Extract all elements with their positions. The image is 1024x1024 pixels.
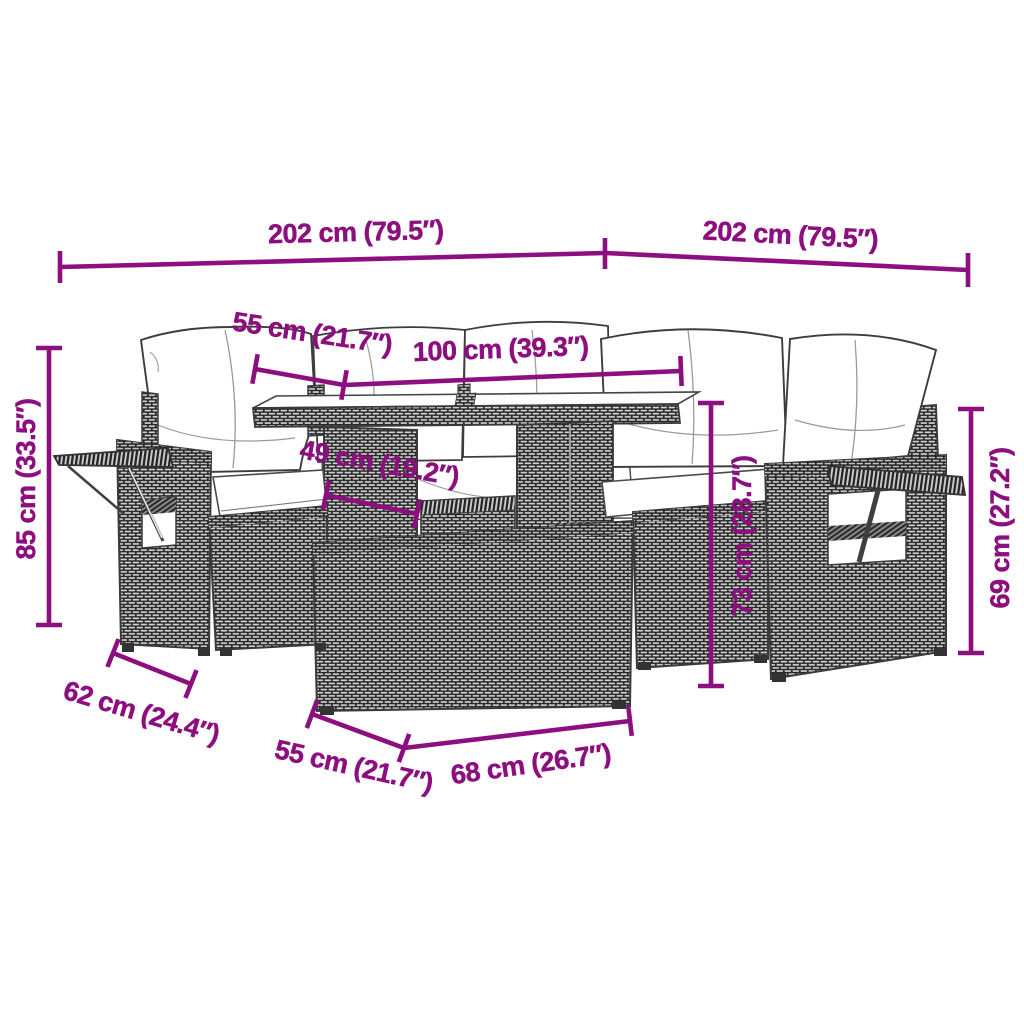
svg-text:73 cm (28.7″): 73 cm (28.7″) [727,455,757,616]
svg-text:100 cm (39.3″): 100 cm (39.3″) [412,331,588,367]
svg-text:85 cm (33.5″): 85 cm (33.5″) [11,398,41,559]
svg-text:202 cm (79.5″): 202 cm (79.5″) [268,215,444,250]
svg-text:69 cm (27.2″): 69 cm (27.2″) [985,447,1015,608]
